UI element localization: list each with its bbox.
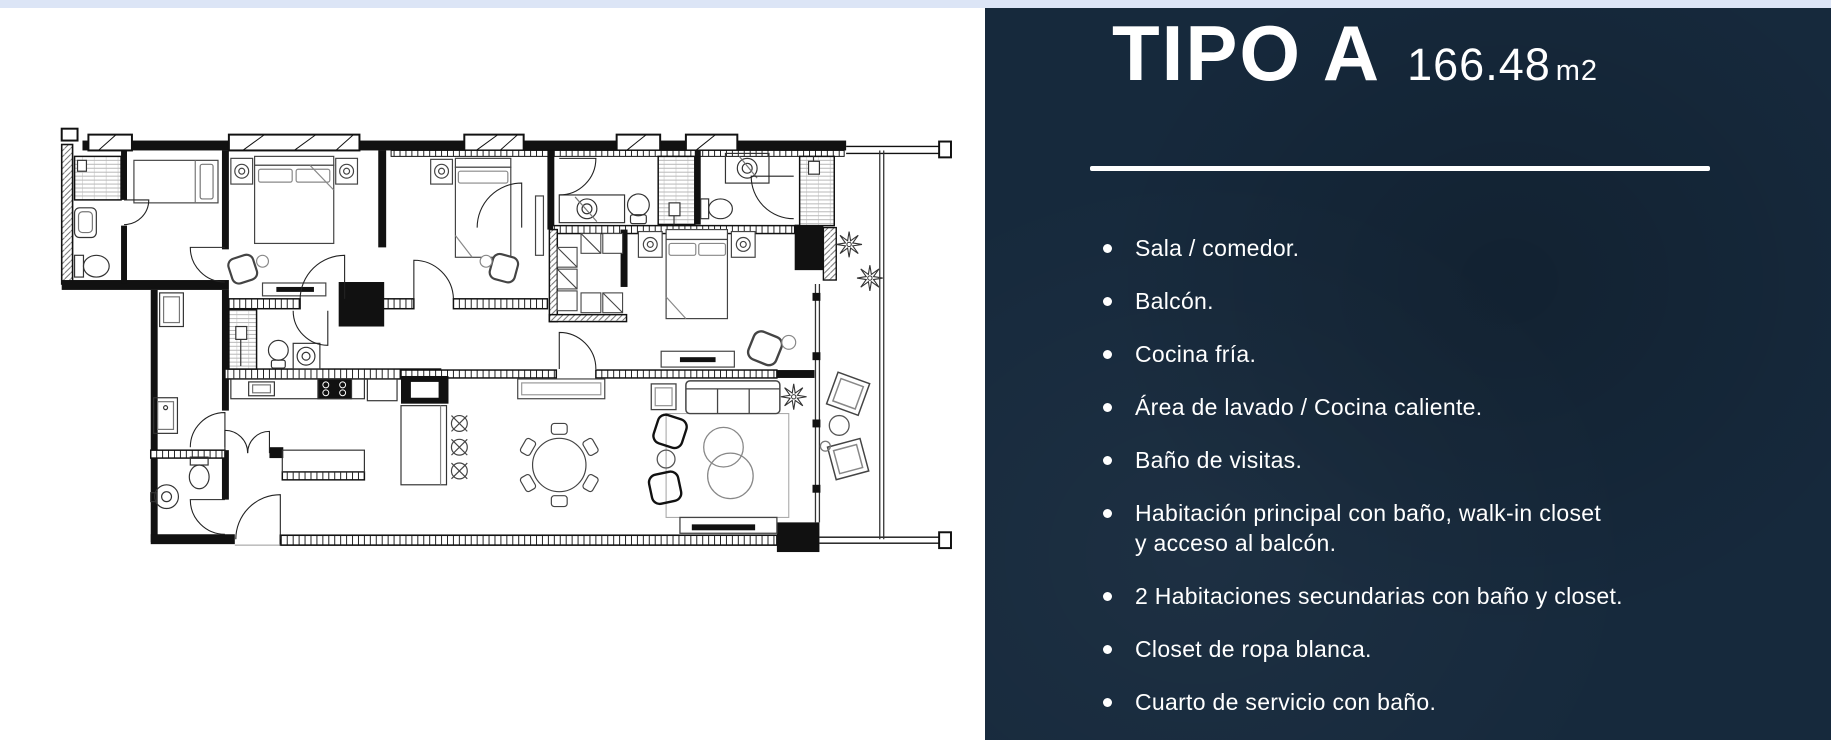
feature-list: Sala / comedor. Balcón. Cocina fría. Áre… bbox=[1103, 233, 1803, 717]
bed-icon bbox=[134, 160, 218, 203]
fridge-icon bbox=[367, 379, 397, 401]
toilet-icon bbox=[701, 199, 733, 219]
floor-plan bbox=[0, 8, 985, 740]
bed-icon bbox=[666, 230, 727, 319]
sofa-icon bbox=[686, 381, 780, 414]
credenza-icon bbox=[518, 379, 605, 399]
divider-rule bbox=[1090, 166, 1710, 171]
bathroom-guest bbox=[229, 310, 320, 369]
nightstand-icon bbox=[231, 158, 253, 184]
feature-text: Balcón. bbox=[1135, 286, 1214, 316]
bullet-icon bbox=[1103, 297, 1112, 306]
feature-item: Baño de visitas. bbox=[1103, 445, 1803, 475]
feature-text: Baño de visitas. bbox=[1135, 445, 1302, 475]
top-accent-strip bbox=[0, 0, 1831, 8]
plant-icon bbox=[836, 232, 862, 258]
feature-text: Closet de ropa blanca. bbox=[1135, 634, 1372, 664]
tv-console-icon bbox=[680, 517, 777, 533]
bathroom-secondary-1 bbox=[75, 156, 121, 277]
sink-icon bbox=[75, 208, 97, 238]
lounge-chair-icon bbox=[828, 438, 869, 479]
kitchen-sink-icon bbox=[249, 382, 275, 396]
feature-text: Cuarto de servicio con baño. bbox=[1135, 687, 1436, 717]
feature-text: 2 Habitaciones secundarias con baño y cl… bbox=[1135, 581, 1623, 611]
armchair-icon bbox=[651, 413, 688, 450]
toilet-icon bbox=[75, 255, 110, 277]
feature-text: Área de lavado / Cocina caliente. bbox=[1135, 392, 1482, 422]
toilet-icon bbox=[189, 457, 209, 489]
page-title: TIPO A bbox=[1112, 10, 1381, 96]
feature-text: Habitación principal con baño, walk-in c… bbox=[1135, 498, 1615, 558]
laundry-area bbox=[154, 293, 184, 433]
feature-item: Cuarto de servicio con baño. bbox=[1103, 687, 1803, 717]
floor-plan-area bbox=[0, 8, 985, 740]
bed-icon bbox=[255, 156, 334, 243]
ottoman-icon bbox=[708, 453, 754, 499]
bedroom-main bbox=[638, 230, 795, 368]
dining-chair-icon bbox=[519, 423, 599, 506]
feature-item: Área de lavado / Cocina caliente. bbox=[1103, 392, 1803, 422]
dresser-icon bbox=[263, 283, 326, 296]
page: { "page": { "colors": { "top_strip": "#d… bbox=[0, 0, 1831, 740]
feature-text: Sala / comedor. bbox=[1135, 233, 1299, 263]
toilet-icon bbox=[628, 194, 650, 224]
armchair-icon bbox=[227, 253, 259, 285]
info-panel: TIPO A 166.48m2 Sala / comedor. Balcón. … bbox=[985, 0, 1831, 740]
stove-icon bbox=[318, 379, 352, 399]
feature-text: Cocina fría. bbox=[1135, 339, 1256, 369]
toilet-icon bbox=[268, 340, 288, 368]
dresser-icon bbox=[536, 196, 544, 255]
area-size: 166.48m2 bbox=[1407, 39, 1598, 91]
kitchen-peninsula bbox=[282, 450, 364, 472]
walkin-closet bbox=[557, 234, 622, 313]
bedroom-secondary-2 bbox=[227, 156, 358, 295]
nightstand-icon bbox=[336, 158, 358, 184]
living-area bbox=[648, 381, 789, 533]
nightstand-icon bbox=[731, 232, 755, 258]
area-unit: m2 bbox=[1556, 55, 1598, 87]
dining-area bbox=[518, 379, 605, 507]
feature-item: Closet de ropa blanca. bbox=[1103, 634, 1803, 664]
bullet-icon bbox=[1103, 244, 1112, 253]
nightstand-icon bbox=[431, 159, 453, 184]
feature-item: Sala / comedor. bbox=[1103, 233, 1803, 263]
tv-console-icon bbox=[661, 351, 734, 367]
armchair-icon bbox=[746, 329, 785, 368]
side-table-icon bbox=[651, 384, 676, 410]
feature-item: Cocina fría. bbox=[1103, 339, 1803, 369]
bathroom-secondary-shared bbox=[559, 156, 695, 224]
plant-icon bbox=[857, 265, 883, 291]
barstool-icon bbox=[451, 416, 467, 479]
laundry-sink-icon bbox=[154, 398, 178, 434]
bedroom-secondary-1 bbox=[134, 160, 218, 203]
bullet-icon bbox=[1103, 350, 1112, 359]
lounge-chair-icon bbox=[827, 372, 870, 415]
dining-table-icon bbox=[533, 438, 586, 491]
bedroom-secondary-3 bbox=[431, 158, 544, 284]
bathroom-main bbox=[701, 153, 835, 225]
bed-icon bbox=[455, 158, 510, 257]
nightstand-icon bbox=[638, 232, 662, 258]
rug bbox=[666, 414, 789, 518]
armchair-icon bbox=[648, 470, 683, 505]
bullet-icon bbox=[1103, 403, 1112, 412]
bullet-icon bbox=[1103, 645, 1112, 654]
feature-item: 2 Habitaciones secundarias con baño y cl… bbox=[1103, 581, 1803, 611]
feature-item: Habitación principal con baño, walk-in c… bbox=[1103, 498, 1803, 558]
area-value: 166.48 bbox=[1407, 39, 1551, 90]
bullet-icon bbox=[1103, 698, 1112, 707]
title-row: TIPO A 166.48m2 bbox=[1112, 10, 1803, 96]
feature-item: Balcón. bbox=[1103, 286, 1803, 316]
bullet-icon bbox=[1103, 456, 1112, 465]
kitchen-island bbox=[401, 406, 447, 485]
bullet-icon bbox=[1103, 509, 1112, 518]
plant-icon bbox=[781, 384, 807, 410]
ottoman-icon bbox=[704, 427, 744, 467]
service-bathroom bbox=[151, 457, 209, 508]
armchair-icon bbox=[488, 252, 519, 283]
bullet-icon bbox=[1103, 592, 1112, 601]
linen-closet-icon bbox=[160, 293, 184, 327]
sink-icon bbox=[293, 343, 320, 369]
